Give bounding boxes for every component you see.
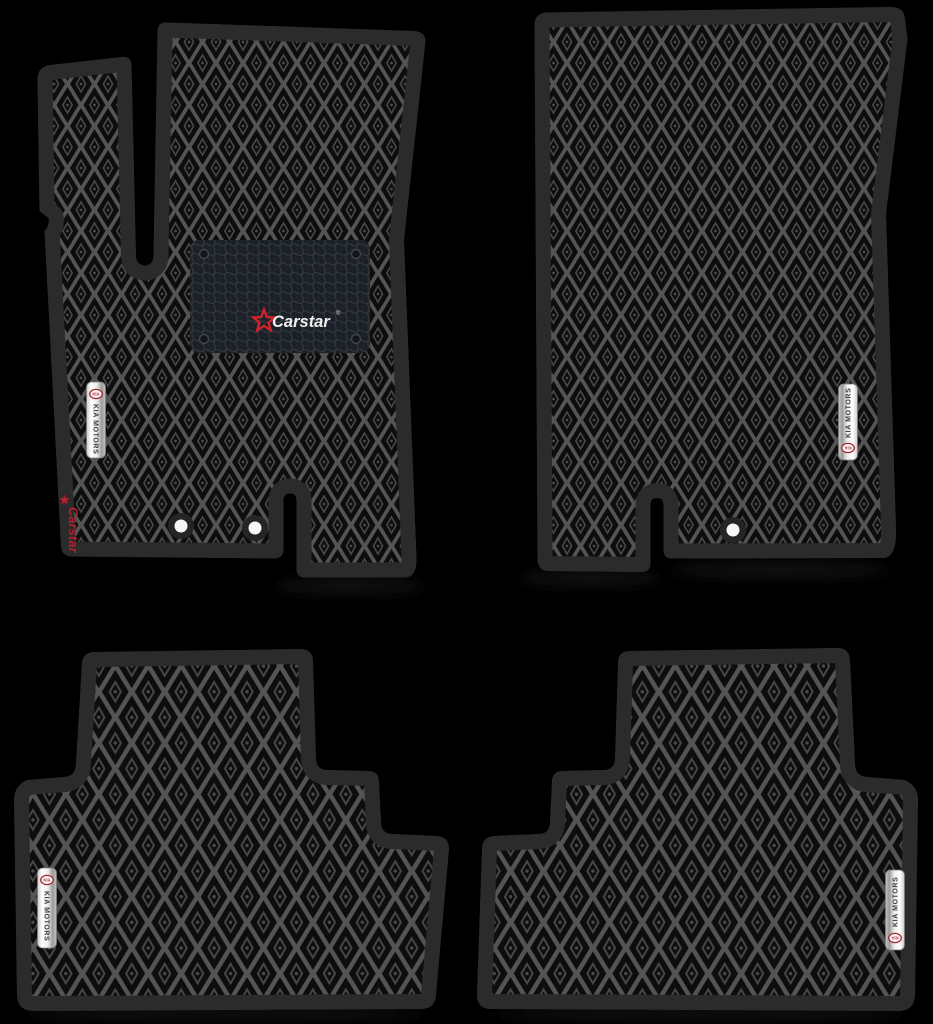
kia-oval-text: KIA [844, 445, 851, 450]
kia-motors-label: KIA MOTORS [43, 891, 50, 941]
heel-pad-honeycomb [190, 240, 370, 353]
kia-badge-rear-left: KIA KIA MOTORS [38, 868, 57, 948]
fixing-holes-front-passenger [720, 517, 746, 543]
kia-badge-front-passenger: KIA KIA MOTORS [839, 384, 858, 460]
kia-motors-label: KIA MOTORS [845, 388, 852, 438]
registered-mark: ® [336, 310, 341, 317]
product-photo-car-mats: Carstar ® KIA KIA MOTORS Carstar [0, 0, 933, 1024]
front-driver-mat: Carstar ® KIA KIA MOTORS Carstar [38, 22, 426, 577]
kia-motors-label: KIA MOTORS [892, 877, 899, 927]
kia-motors-label: KIA MOTORS [92, 404, 99, 454]
heel-pad: Carstar ® [190, 240, 370, 353]
kia-oval-text: KIA [43, 878, 50, 883]
front-passenger-mat-surface [534, 7, 907, 572]
kia-oval-text: KIA [92, 392, 99, 397]
kia-badge-front-driver: KIA KIA MOTORS [87, 382, 106, 458]
carstar-wordmark: Carstar [272, 313, 331, 331]
kia-badge-rear-right: KIA KIA MOTORS [886, 870, 905, 950]
side-brand-wordmark: Carstar [66, 507, 80, 554]
kia-oval-text: KIA [891, 935, 898, 940]
front-passenger-mat: KIA KIA MOTORS [534, 7, 907, 572]
